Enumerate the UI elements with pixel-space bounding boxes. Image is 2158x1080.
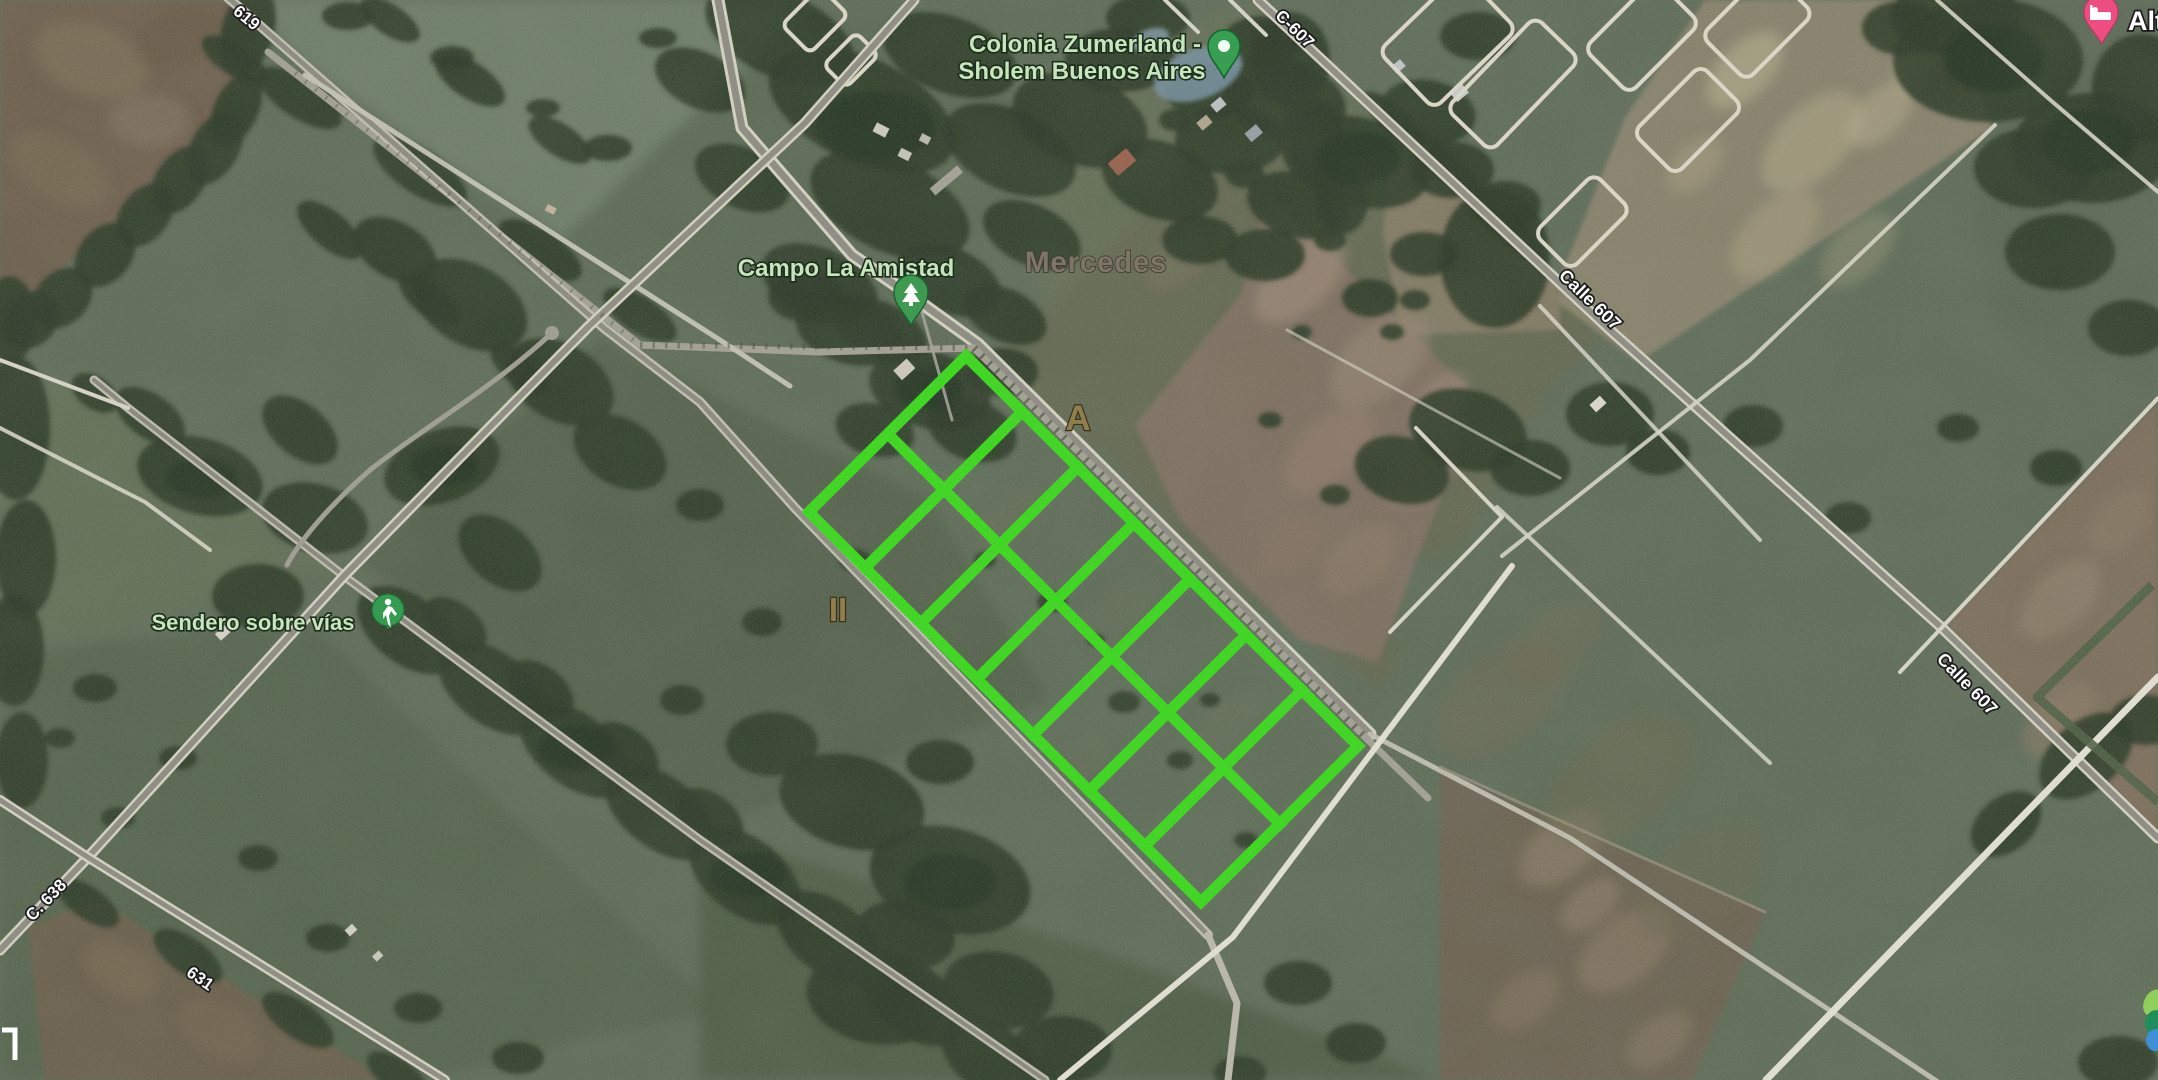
svg-text:Sholem Buenos Aires: Sholem Buenos Aires (958, 58, 1205, 85)
svg-text:Altos: Altos (2128, 6, 2158, 36)
svg-text:A: A (1065, 399, 1090, 438)
svg-text:II: II (829, 591, 847, 628)
svg-text:Mercedes: Mercedes (1025, 246, 1167, 279)
svg-text:Colonia Zumerland -: Colonia Zumerland - (969, 31, 1201, 58)
svg-text:Sendero sobre vías: Sendero sobre vías (152, 610, 355, 635)
